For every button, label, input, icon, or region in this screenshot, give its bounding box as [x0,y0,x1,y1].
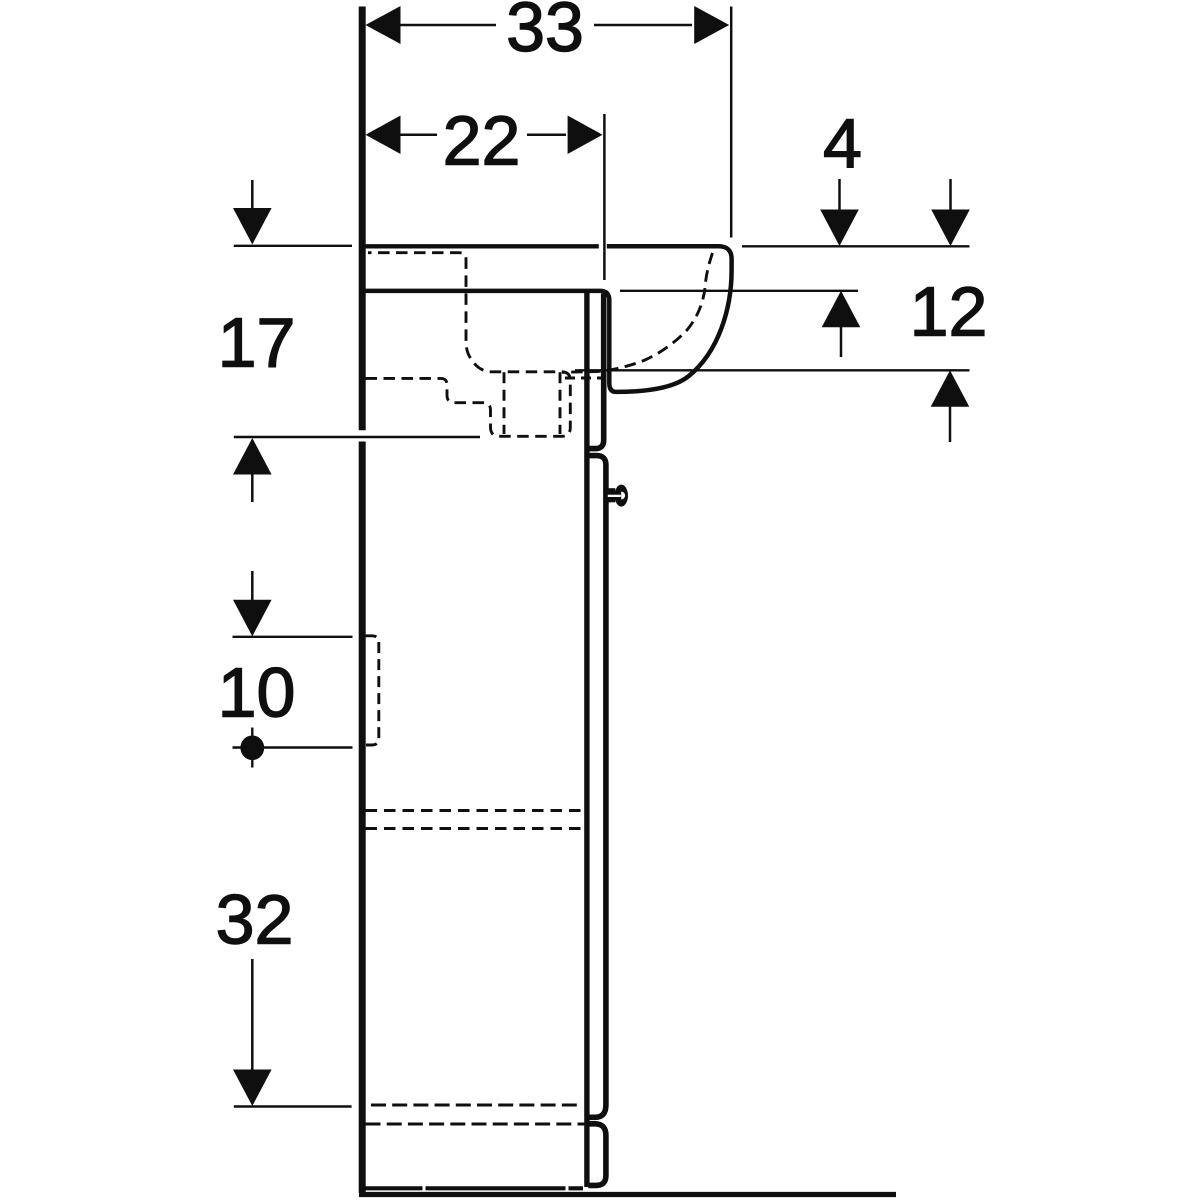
svg-text:17: 17 [218,304,296,382]
svg-text:32: 32 [216,881,294,959]
svg-text:12: 12 [910,273,988,351]
svg-text:22: 22 [443,102,521,180]
svg-text:33: 33 [506,0,584,66]
svg-text:10: 10 [218,654,296,732]
svg-text:4: 4 [823,105,862,183]
